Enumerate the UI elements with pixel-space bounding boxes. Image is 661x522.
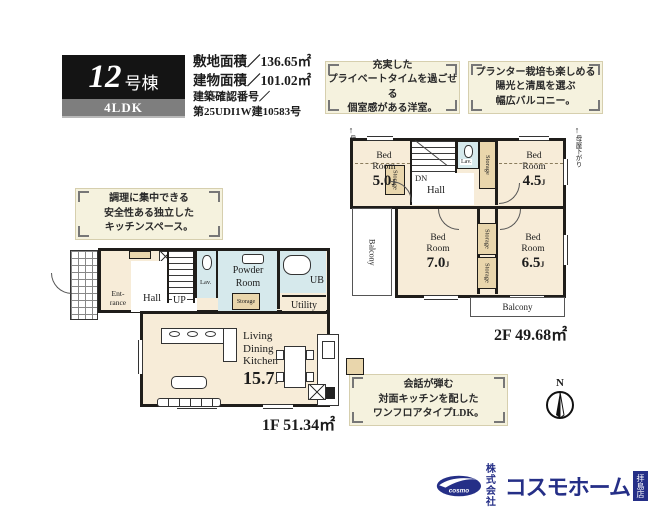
- brand-name: コスモホーム: [505, 470, 630, 502]
- room-size: 6.5: [522, 255, 541, 271]
- bracket-icon: [494, 377, 505, 388]
- window: [138, 340, 143, 374]
- compass: N: [543, 377, 577, 423]
- callout-kitchen: 調理に集中できる 安全性ある独立した キッチンスペース。: [75, 188, 223, 240]
- stool-icon: [169, 331, 180, 337]
- hall-2f-label: Hall: [427, 185, 445, 196]
- bathtub-icon: [283, 255, 311, 275]
- door-arc: [438, 209, 459, 230]
- confirmation-number-label: 建築確認番号／: [193, 90, 343, 105]
- callout-balcony: プランター栽培も楽しめる 陽光と清風を選ぶ 幅広バルコニー。: [468, 61, 603, 114]
- room-word: Room: [521, 244, 544, 254]
- lavatory-1f: Lav.: [195, 251, 218, 298]
- bracket-icon: [352, 377, 363, 388]
- low-table: [171, 376, 207, 389]
- sink-icon: [322, 341, 335, 359]
- callout-line: 幅広バルコニー。: [469, 95, 602, 110]
- property-details: 敷地面積／136.65㎡ 建物面積／101.02㎡ 建築確認番号／ 第25UDI…: [193, 52, 343, 120]
- window: [563, 235, 568, 265]
- room-word: Bed: [430, 233, 445, 243]
- bedroom-70-label: Bed Room 7.0J: [410, 233, 466, 272]
- toilet-icon: [464, 145, 473, 158]
- door-arc: [499, 183, 520, 204]
- bracket-icon: [589, 64, 600, 75]
- chair-icon: [306, 372, 314, 382]
- floor1-area-label: 1F 51.34㎡: [262, 411, 335, 435]
- bracket-icon: [494, 412, 505, 423]
- ldk-word: Living: [243, 330, 279, 343]
- bracket-icon: [209, 226, 220, 237]
- bracket-icon: [328, 100, 339, 111]
- storage-label: Storage: [237, 299, 255, 305]
- hall-1f-label: Hall: [143, 293, 161, 304]
- lavatory-2f: Lav.: [457, 141, 479, 169]
- ldk-word: Dining: [243, 343, 279, 356]
- company-logo: cosmo 株式 会社 コスモホーム 拝島店: [436, 468, 648, 504]
- door-arc: [500, 209, 521, 230]
- plan-type-bar: 4LDK: [62, 99, 185, 118]
- floor2-lower-block: Storage Storage Bed Room 7.0J Bed Room 6…: [395, 206, 566, 298]
- balcony-left-2f: Balcony: [352, 208, 392, 296]
- up-label: UP: [172, 295, 187, 306]
- company-prefix: 株式 会社: [486, 464, 502, 508]
- unit-bath: UB: [280, 251, 326, 293]
- ldk-word: Kitchen: [243, 355, 279, 368]
- floor2-area-label: 2F 49.68㎡: [494, 321, 567, 345]
- window: [563, 159, 568, 185]
- window: [519, 136, 549, 141]
- room-size-unit: J: [541, 178, 545, 187]
- chair-icon: [276, 350, 284, 360]
- ldk-label: Living Dining Kitchen 15.7J: [243, 330, 279, 389]
- floor1-upper-block: Ent- rance Hall UP Lav. Powder Room Stor…: [98, 248, 330, 313]
- floor-plan-2f: ↑ 母屋下がり ↑ 母屋下がり DN Hall Lav.: [346, 118, 596, 348]
- bedroom-65-label: Bed Room 6.5J: [506, 233, 560, 272]
- callout-line: 調理に集中できる: [76, 192, 222, 207]
- callout-line: プランター栽培も楽しめる: [469, 66, 602, 81]
- refrigerator: [346, 358, 364, 375]
- balcony-bottom-2f: Balcony: [470, 297, 565, 317]
- room-size: 5.0: [373, 173, 392, 189]
- flyer-canvas: 12 号棟 4LDK 敷地面積／136.65㎡ 建物面積／101.02㎡ 建築確…: [0, 0, 661, 522]
- ub-label: UB: [310, 275, 324, 286]
- callout-line: 対面キッチンを配した: [350, 393, 507, 408]
- roof-note-right: ↑ 母屋下がり: [572, 126, 582, 168]
- bracket-icon: [446, 100, 457, 111]
- bracket-icon: [446, 64, 457, 75]
- up-arrow-icon: ↑: [575, 126, 580, 135]
- room-word: Room: [522, 162, 545, 172]
- sofa: [157, 398, 221, 407]
- storage-label: Storage: [484, 229, 491, 249]
- storage-2f-d: Storage: [477, 257, 497, 289]
- closet-mark: [129, 251, 151, 259]
- powder-word: Room: [224, 278, 272, 291]
- entrance-label: Ent- rance: [103, 289, 133, 307]
- entrance-porch: [70, 250, 98, 320]
- cosmo-ellipse-icon: cosmo: [436, 471, 482, 501]
- company-word: 株式: [486, 464, 502, 486]
- chair-icon: [306, 350, 314, 360]
- callout-line: 安全性ある独立した: [76, 207, 222, 222]
- powder-room: Powder Room Storage: [218, 251, 277, 312]
- storage-label: Storage: [484, 155, 491, 175]
- callout-line: ワンフロアタイプLDK。: [350, 407, 507, 422]
- window: [367, 136, 393, 141]
- storage-1f: Storage: [232, 293, 260, 310]
- bracket-icon: [209, 191, 220, 202]
- storage-2f-b: Storage: [479, 141, 496, 189]
- entrance-door-arc: [51, 273, 72, 294]
- roof-note-text: 母屋下がり: [572, 135, 582, 168]
- room-word: Bed: [376, 151, 391, 161]
- balcony-label: Balcony: [503, 302, 533, 312]
- powder-room-label: Powder Room: [224, 265, 272, 290]
- callout-line: キッチンスペース。: [76, 221, 222, 236]
- callout-ldk: 会話が弾む 対面キッチンを配した ワンフロアタイプLDK。: [349, 374, 508, 426]
- callout-line: 会話が弾む: [350, 378, 507, 393]
- compass-north-label: N: [543, 377, 577, 389]
- bracket-icon: [328, 64, 339, 75]
- unit-suffix: 号棟: [125, 69, 159, 94]
- compass-icon: [545, 389, 575, 421]
- callout-private-room: 充実した プライベートタイムを過ごせる 個室感がある洋室。: [325, 61, 460, 114]
- lav-2f-label: Lav.: [460, 159, 472, 165]
- utility-label: Utility: [291, 300, 317, 311]
- bracket-icon: [352, 412, 363, 423]
- bracket-icon: [78, 191, 89, 202]
- storage-label: Storage: [484, 263, 491, 283]
- bracket-icon: [471, 64, 482, 75]
- svg-text:cosmo: cosmo: [449, 487, 469, 494]
- window: [424, 295, 458, 300]
- callout-line: 充実した: [326, 59, 459, 74]
- room-size: 7.0: [427, 255, 446, 271]
- unit-number: 12: [89, 61, 122, 94]
- lav-1f-label: Lav.: [200, 279, 211, 286]
- ldk-size: 15.7: [243, 368, 275, 388]
- unit-title-block: 12 号棟: [62, 55, 185, 99]
- bracket-icon: [78, 226, 89, 237]
- store-badge: 拝島店: [633, 471, 648, 501]
- kitchen-counter-leg: [223, 328, 237, 362]
- callout-line: プライベートタイムを過ごせる: [326, 73, 459, 102]
- stool-icon: [205, 331, 216, 337]
- powder-word: Powder: [224, 265, 272, 278]
- building-area: 建物面積／101.02㎡: [193, 71, 343, 90]
- x-symbol: [308, 384, 326, 400]
- room-word: Bed: [526, 151, 541, 161]
- toilet-icon: [202, 255, 212, 270]
- dn-label: DN: [415, 173, 427, 183]
- room-size: 4.5: [523, 173, 542, 189]
- entrance-word: rance: [103, 298, 133, 307]
- room-word: Room: [426, 244, 449, 254]
- ldk-block: Living Dining Kitchen 15.7J: [140, 311, 330, 407]
- room-word: Bed: [525, 233, 540, 243]
- washbasin-icon: [242, 254, 264, 264]
- site-area: 敷地面積／136.65㎡: [193, 52, 343, 71]
- stool-icon: [187, 331, 198, 337]
- dining-table: [284, 346, 306, 388]
- callout-line: 個室感がある洋室。: [326, 102, 459, 117]
- room-size-unit: J: [445, 260, 449, 269]
- storage-2f-c: Storage: [477, 223, 497, 255]
- balcony-label: Balcony: [368, 239, 377, 266]
- company-word: 会社: [486, 486, 502, 508]
- room-size-unit: J: [540, 260, 544, 269]
- window: [263, 404, 293, 409]
- entrance-word: Ent-: [103, 289, 133, 298]
- callout-line: 陽光と清風を選ぶ: [469, 80, 602, 95]
- floor2-upper-block: DN Hall Lav. Storage Storage Bed Room 5: [350, 138, 566, 209]
- bracket-icon: [589, 100, 600, 111]
- bracket-icon: [471, 100, 482, 111]
- confirmation-number-value: 第25UDI1W建10583号: [193, 105, 343, 120]
- up-arrow-icon: ↑: [349, 126, 354, 135]
- floor-plan-1f: Ent- rance Hall UP Lav. Powder Room Stor…: [62, 245, 342, 435]
- room-word: Room: [372, 162, 395, 172]
- chair-icon: [276, 372, 284, 382]
